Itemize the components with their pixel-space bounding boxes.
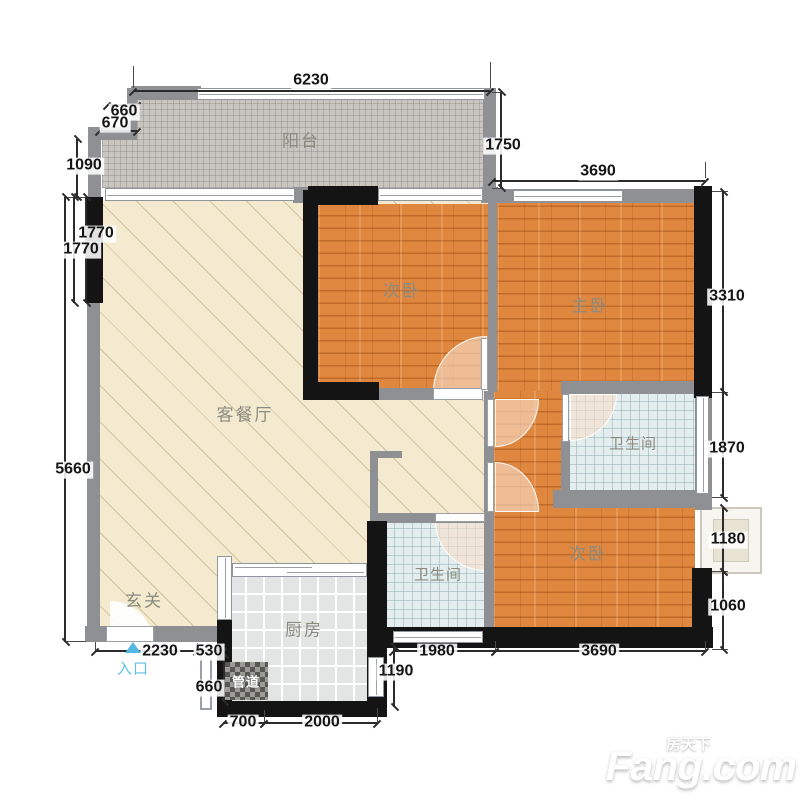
dim-bottom-1980: 1980 [417, 644, 457, 661]
wall-segment-black [303, 190, 318, 400]
dim-right-3310: 3310 [707, 289, 747, 306]
master-bedroom-label: 主卧 [571, 292, 609, 317]
entrance-door-gap [106, 626, 154, 642]
dim-bottom-3690: 3690 [579, 644, 619, 661]
dim-bottom-660: 660 [194, 680, 225, 697]
extension-line [66, 641, 86, 642]
living-dining-label: 客餐厅 [217, 401, 274, 426]
dimension-line [133, 90, 490, 92]
floor-plan: 6230 3690 1750 3310 1870 1180 1060 660 6… [0, 0, 800, 800]
wall-segment [131, 86, 201, 100]
pipe-duct-label: 管道 [232, 672, 260, 691]
kitchen-label: 厨房 [285, 616, 323, 641]
wall-segment [488, 201, 497, 392]
foyer-label: 玄关 [125, 587, 163, 612]
door-leaf [487, 462, 494, 512]
extension-line [133, 66, 134, 88]
wall-segment [561, 440, 570, 496]
dim-bottom-1190: 1190 [377, 664, 416, 681]
dim-top-6230: 6230 [291, 73, 331, 90]
wall-segment [370, 451, 378, 523]
dim-top-3690: 3690 [578, 164, 618, 181]
bedroom-bottom-label: 次卧 [569, 540, 607, 565]
bedroom-top-label: 次卧 [383, 277, 421, 302]
dim-right-1750: 1750 [483, 138, 523, 155]
dim-right-1180: 1180 [709, 532, 748, 549]
dim-bottom-700: 700 [228, 715, 259, 732]
entrance-arrow-icon [125, 642, 141, 653]
extension-line [490, 62, 491, 88]
wall-segment [695, 496, 712, 510]
entrance-label: 入口 [117, 658, 149, 679]
bathroom-mid-window [393, 631, 483, 643]
dim-bottom-530: 530 [194, 644, 225, 661]
wall-segment [379, 388, 433, 400]
dim-left-1770b: 1770 [61, 242, 101, 259]
wall-segment [553, 490, 697, 508]
kitchen-sliding-door [232, 563, 367, 577]
dim-left-5660: 5660 [53, 462, 93, 479]
dim-right-1060: 1060 [708, 599, 748, 616]
balcony-inner-window [105, 188, 295, 201]
wall-segment [561, 381, 697, 394]
bathroom-right-label: 卫生间 [609, 433, 657, 454]
dim-bottom-2000: 2000 [302, 715, 342, 732]
wall-segment-black [303, 382, 379, 400]
dim-left-1090: 1090 [64, 158, 104, 175]
wall-segment-black [308, 186, 378, 205]
door-leaf [562, 394, 569, 442]
door-leaf [435, 513, 485, 522]
bathroom-mid-label: 卫生间 [414, 564, 462, 585]
door-leaf [481, 338, 488, 390]
dimension-line [64, 197, 66, 642]
wall-segment [370, 451, 402, 458]
dim-right-1870: 1870 [707, 441, 747, 458]
extension-line [705, 162, 706, 178]
bedroom-top-window [378, 188, 483, 201]
kitchen-left-window [217, 556, 232, 620]
door-leaf [433, 388, 483, 400]
balcony-label: 阳台 [282, 127, 320, 152]
fang-watermark: 房天下 Fang.com [588, 734, 798, 794]
master-bedroom-window [513, 190, 623, 202]
dim-left-670: 670 [100, 116, 131, 133]
balcony-floor-notch [102, 133, 137, 188]
door-leaf [487, 399, 494, 447]
fang-watermark-logo: Fang.com [606, 742, 796, 790]
